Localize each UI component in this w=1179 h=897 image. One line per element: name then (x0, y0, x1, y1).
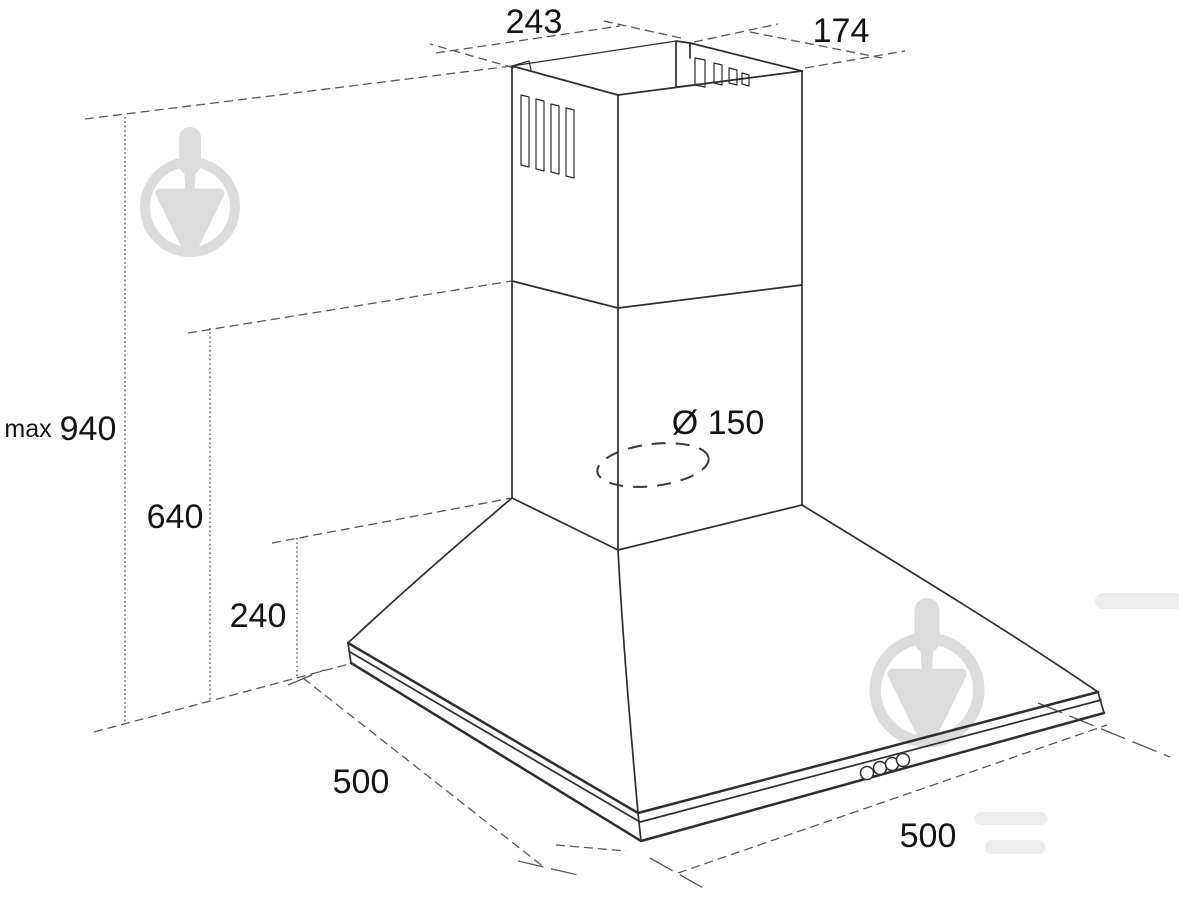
trowel-icon (145, 127, 235, 252)
chimney-back-tab (676, 41, 690, 87)
control-button (861, 767, 874, 780)
control-button (874, 762, 887, 775)
chimney-top-left-rim (512, 66, 618, 95)
extension-line-chimney-seam (188, 281, 512, 333)
trowel-icon (875, 598, 979, 742)
label-hood-height: 240 (230, 597, 287, 635)
watermark-logo-top-left (145, 127, 235, 252)
label-base-width: 500 (333, 763, 390, 801)
label-top-depth: 174 (813, 12, 870, 50)
extension-line-cone-top (272, 498, 512, 543)
extension-line-top-depth-left (694, 24, 778, 42)
drawing-svg: 243 174 max 940 640 240 500 500 Ø 150 (0, 0, 1179, 897)
chimney-back-top-edge (690, 43, 802, 71)
watermark-logo-bottom-right (875, 598, 979, 742)
chimney-top-back-rim (512, 41, 676, 66)
extension-line-top-depth-right (805, 51, 905, 68)
dimension-lines (85, 20, 1170, 889)
left-vent-slots (521, 95, 574, 178)
extension-line-top (85, 66, 512, 119)
tick-base-width-bottom (518, 861, 578, 875)
base-top-rim (348, 643, 1098, 813)
extension-line-top-width-right (599, 20, 681, 38)
control-button (897, 754, 910, 767)
label-top-width: 243 (506, 3, 563, 41)
chimney-seam (512, 281, 802, 308)
cone-left-edge (348, 498, 512, 643)
label-chimney-height: 640 (147, 498, 204, 536)
inner-vent-slots (695, 58, 749, 87)
extension-line-front-corner (556, 845, 626, 851)
label-base-depth: 500 (900, 817, 957, 855)
dimension-labels: 243 174 max 940 640 240 500 500 Ø 150 (4, 3, 956, 855)
cone-top-rim (512, 498, 802, 550)
hood-dimension-drawing: 243 174 max 940 640 240 500 500 Ø 150 (0, 0, 1179, 897)
label-max-height: 940 (60, 410, 117, 448)
floor-reference-line (94, 664, 349, 732)
cone-right-edge (802, 505, 1098, 692)
base-seam (350, 652, 1101, 822)
base-front-corner-edge (638, 813, 641, 841)
tick-base-depth-left (650, 858, 705, 889)
base-right-corner-edge (1098, 692, 1104, 713)
duct-hole-ellipse (595, 437, 711, 492)
cone-front-edge (618, 550, 638, 813)
label-duct-diameter: Ø 150 (672, 404, 765, 442)
label-max-prefix: max (4, 415, 52, 443)
